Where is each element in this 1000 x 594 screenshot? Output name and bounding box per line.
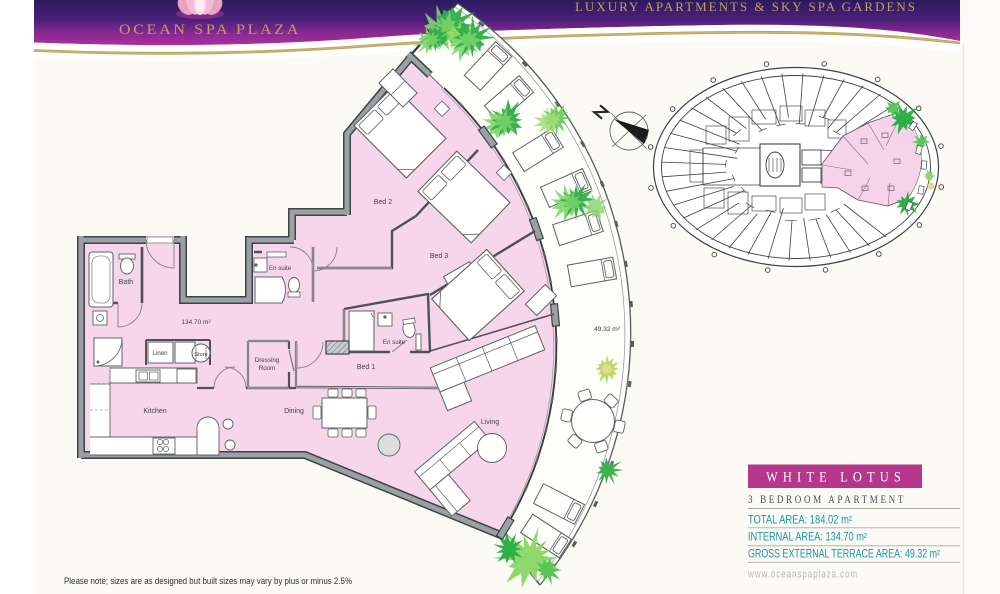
svg-text:INTERNAL AREA: 134.70 m²: INTERNAL AREA: 134.70 m² — [748, 532, 867, 544]
svg-text:134.70 m²: 134.70 m² — [181, 319, 211, 326]
svg-text:Store: Store — [194, 352, 207, 358]
svg-text:TOTAL AREA: 184.02 m²: TOTAL AREA: 184.02 m² — [748, 515, 852, 527]
svg-text:GROSS EXTERNAL TERRACE AREA: 4: GROSS EXTERNAL TERRACE AREA: 49.32 m² — [748, 549, 940, 561]
svg-text:Please note; sizes are as desi: Please note; sizes are as designed but b… — [64, 576, 352, 587]
svg-text:Dressing: Dressing — [255, 357, 280, 364]
svg-text:www.oceanspaplaza.com: www.oceanspaplaza.com — [747, 569, 858, 581]
svg-text:En suite: En suite — [383, 339, 406, 346]
svg-text:Dining: Dining — [284, 408, 304, 415]
svg-text:Bed 2: Bed 2 — [374, 199, 392, 206]
svg-text:Room: Room — [259, 365, 276, 372]
svg-text:Living: Living — [481, 419, 499, 426]
svg-text:WHITE LOTUS: WHITE LOTUS — [766, 470, 906, 486]
svg-text:Bath: Bath — [119, 279, 134, 286]
svg-text:49.32 m²: 49.32 m² — [594, 326, 620, 333]
svg-text:Linen: Linen — [152, 350, 168, 357]
svg-text:Bed 3: Bed 3 — [430, 253, 448, 260]
svg-text:3 BEDROOM APARTMENT: 3 BEDROOM APARTMENT — [748, 492, 906, 506]
svg-text:OCEAN SPA PLAZA: OCEAN SPA PLAZA — [119, 22, 301, 38]
svg-text:En suite: En suite — [269, 265, 292, 272]
svg-text:Kitchen: Kitchen — [143, 408, 166, 415]
svg-text:Bed 1: Bed 1 — [357, 364, 375, 371]
svg-text:LUXURY APARTMENTS & SKY SPA GA: LUXURY APARTMENTS & SKY SPA GARDENS — [575, 0, 917, 14]
